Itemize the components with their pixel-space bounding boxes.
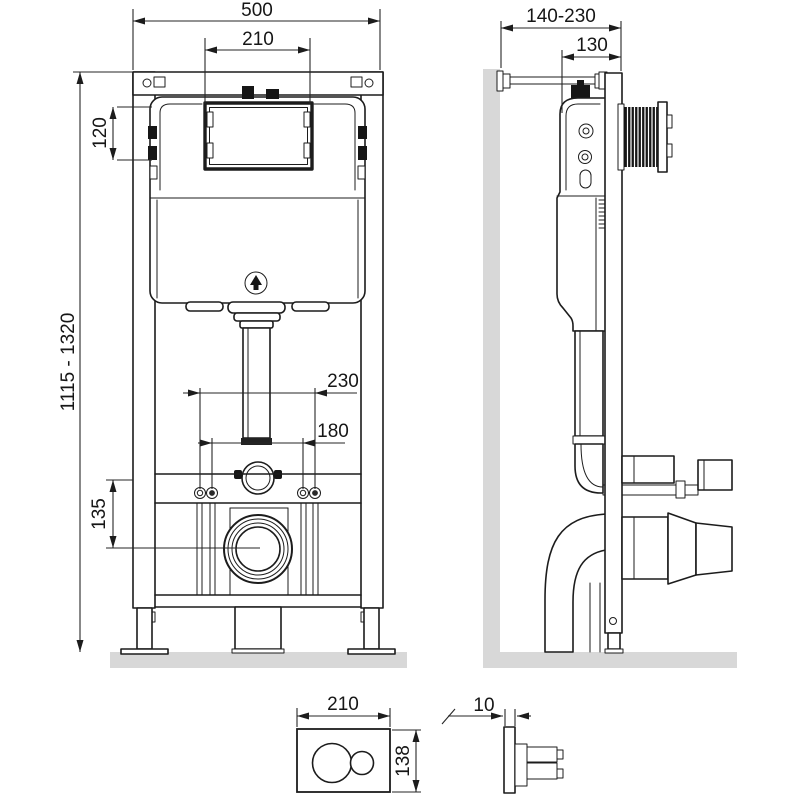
dim-label-135: 135 bbox=[89, 498, 110, 530]
technical-drawing-page: 500 210 120 1115 - 1320 230 bbox=[0, 0, 800, 800]
lower-structure bbox=[155, 503, 361, 653]
dim-label-10: 10 bbox=[473, 695, 494, 716]
flush-button-large bbox=[313, 744, 352, 783]
plate-profile bbox=[504, 727, 515, 793]
dim-label-height-range: 1115 - 1320 bbox=[58, 313, 79, 412]
dim-plate-height: 138 bbox=[392, 730, 421, 792]
flush-button-small bbox=[351, 752, 374, 775]
wall bbox=[483, 69, 500, 652]
wall-anchor-rod bbox=[497, 71, 607, 91]
flush-pipe-side bbox=[573, 331, 605, 493]
dim-label-138: 138 bbox=[393, 745, 414, 777]
inlet-connector-small bbox=[266, 89, 279, 99]
side-view: 140-230 130 bbox=[483, 6, 737, 668]
dim-label-130: 130 bbox=[576, 35, 608, 56]
dim-label-230: 230 bbox=[327, 371, 359, 392]
floor-side bbox=[483, 652, 737, 668]
flush-plate-front-view: 210 138 bbox=[297, 694, 421, 792]
dim-label-210: 210 bbox=[242, 29, 274, 50]
dim-label-180: 180 bbox=[317, 421, 349, 442]
inspection-window bbox=[205, 103, 312, 169]
waste-bend-pipe bbox=[545, 514, 606, 652]
flush-plate-side-view: 10 bbox=[442, 695, 563, 793]
flush-plate-shaft bbox=[618, 102, 672, 172]
brand-logo-mark bbox=[245, 272, 267, 294]
waste-outlet bbox=[224, 515, 292, 583]
front-view: 500 210 120 1115 - 1320 230 bbox=[58, 0, 407, 668]
installation-frame-drawing: 500 210 120 1115 - 1320 230 bbox=[0, 0, 800, 800]
dim-plate-width: 210 bbox=[297, 694, 390, 727]
dim-plate-thickness: 10 bbox=[442, 695, 531, 726]
dim-label-plate-210: 210 bbox=[327, 694, 359, 715]
dim-label-500: 500 bbox=[241, 0, 273, 21]
dim-label-140-230: 140-230 bbox=[526, 6, 596, 27]
inlet-connector bbox=[242, 86, 254, 99]
waste-outlet-connector bbox=[622, 513, 732, 584]
outlet-duct bbox=[235, 607, 281, 649]
cistern-side bbox=[557, 80, 607, 331]
dim-installation-height: 1115 - 1320 bbox=[58, 72, 133, 652]
flush-pipe-front bbox=[186, 302, 329, 494]
dim-label-120: 120 bbox=[90, 117, 111, 149]
